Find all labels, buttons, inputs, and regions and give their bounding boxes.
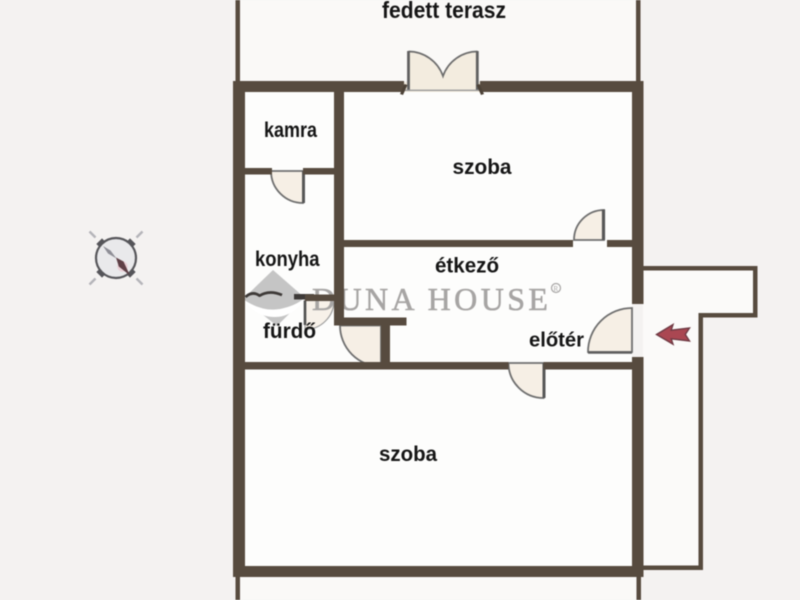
svg-text:kamra: kamra	[264, 119, 317, 142]
svg-text:konyha: konyha	[255, 248, 320, 271]
svg-text:étkező: étkező	[435, 255, 499, 278]
svg-text:fedett terasz: fedett terasz	[382, 0, 506, 23]
svg-text:előtér: előtér	[529, 329, 584, 352]
svg-text:R: R	[554, 285, 559, 293]
svg-text:DUNA HOUSE: DUNA HOUSE	[312, 281, 551, 317]
svg-text:fürdő: fürdő	[263, 320, 316, 343]
svg-text:szoba: szoba	[453, 156, 512, 179]
svg-text:szoba: szoba	[379, 443, 437, 466]
